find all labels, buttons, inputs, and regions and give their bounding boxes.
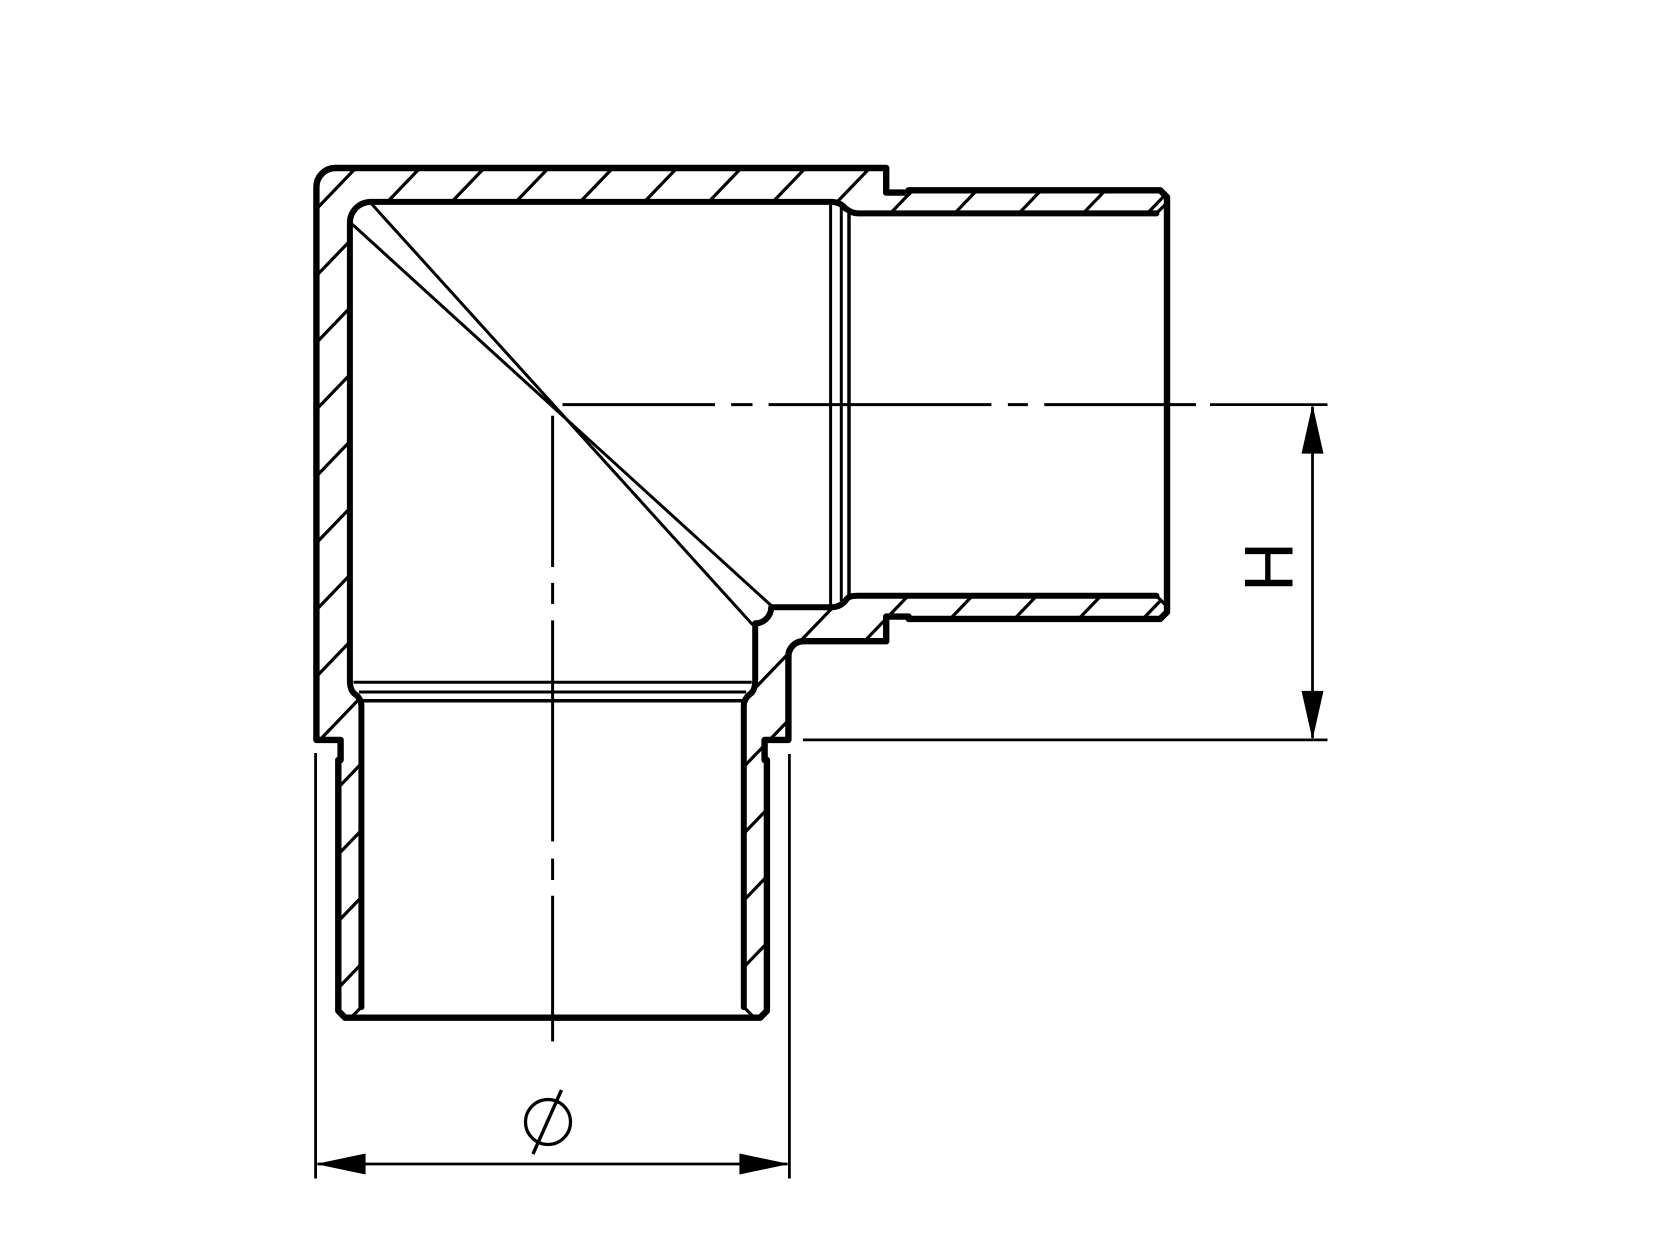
- svg-text:H: H: [1231, 542, 1308, 592]
